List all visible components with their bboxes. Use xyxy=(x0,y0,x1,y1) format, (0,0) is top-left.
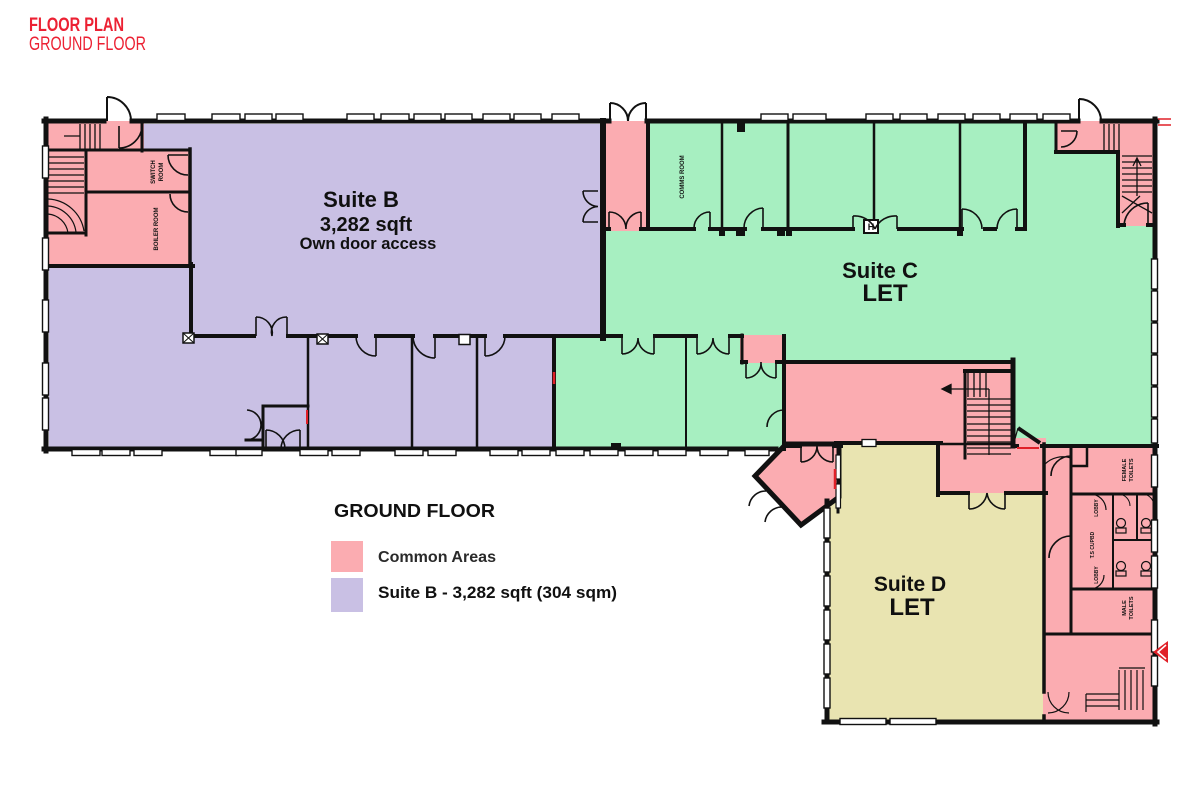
svg-text:COMMS ROOM: COMMS ROOM xyxy=(680,155,686,198)
svg-text:Common Areas: Common Areas xyxy=(378,549,496,566)
svg-text:LET: LET xyxy=(862,280,908,307)
svg-text:TOILETS: TOILETS xyxy=(1129,596,1135,619)
svg-text:Suite D: Suite D xyxy=(874,573,946,596)
svg-text:FEMALE: FEMALE xyxy=(1122,458,1128,481)
svg-text:GROUND FLOOR: GROUND FLOOR xyxy=(334,501,495,521)
svg-text:SWITCH: SWITCH xyxy=(151,160,157,184)
svg-text:LET: LET xyxy=(889,594,935,621)
svg-text:TOILETS: TOILETS xyxy=(1129,458,1135,481)
svg-text:LOBBY: LOBBY xyxy=(1094,566,1100,584)
svg-text:Suite B - 3,282 sqft (304 sqm): Suite B - 3,282 sqft (304 sqm) xyxy=(378,584,617,602)
svg-text:MALE: MALE xyxy=(1122,600,1128,616)
svg-text:GROUND FLOOR: GROUND FLOOR xyxy=(29,34,146,55)
svg-text:BOILER ROOM: BOILER ROOM xyxy=(154,207,160,250)
svg-text:T.S CUPBD: T.S CUPBD xyxy=(1090,531,1096,558)
svg-text:3,282 sqft: 3,282 sqft xyxy=(320,214,413,236)
svg-text:ROOM: ROOM xyxy=(159,163,165,182)
svg-text:Own door access: Own door access xyxy=(300,235,437,253)
svg-text:FLOOR PLAN: FLOOR PLAN xyxy=(29,15,124,36)
svg-text:LOBBY: LOBBY xyxy=(1094,499,1100,517)
svg-text:Suite B: Suite B xyxy=(323,187,399,212)
